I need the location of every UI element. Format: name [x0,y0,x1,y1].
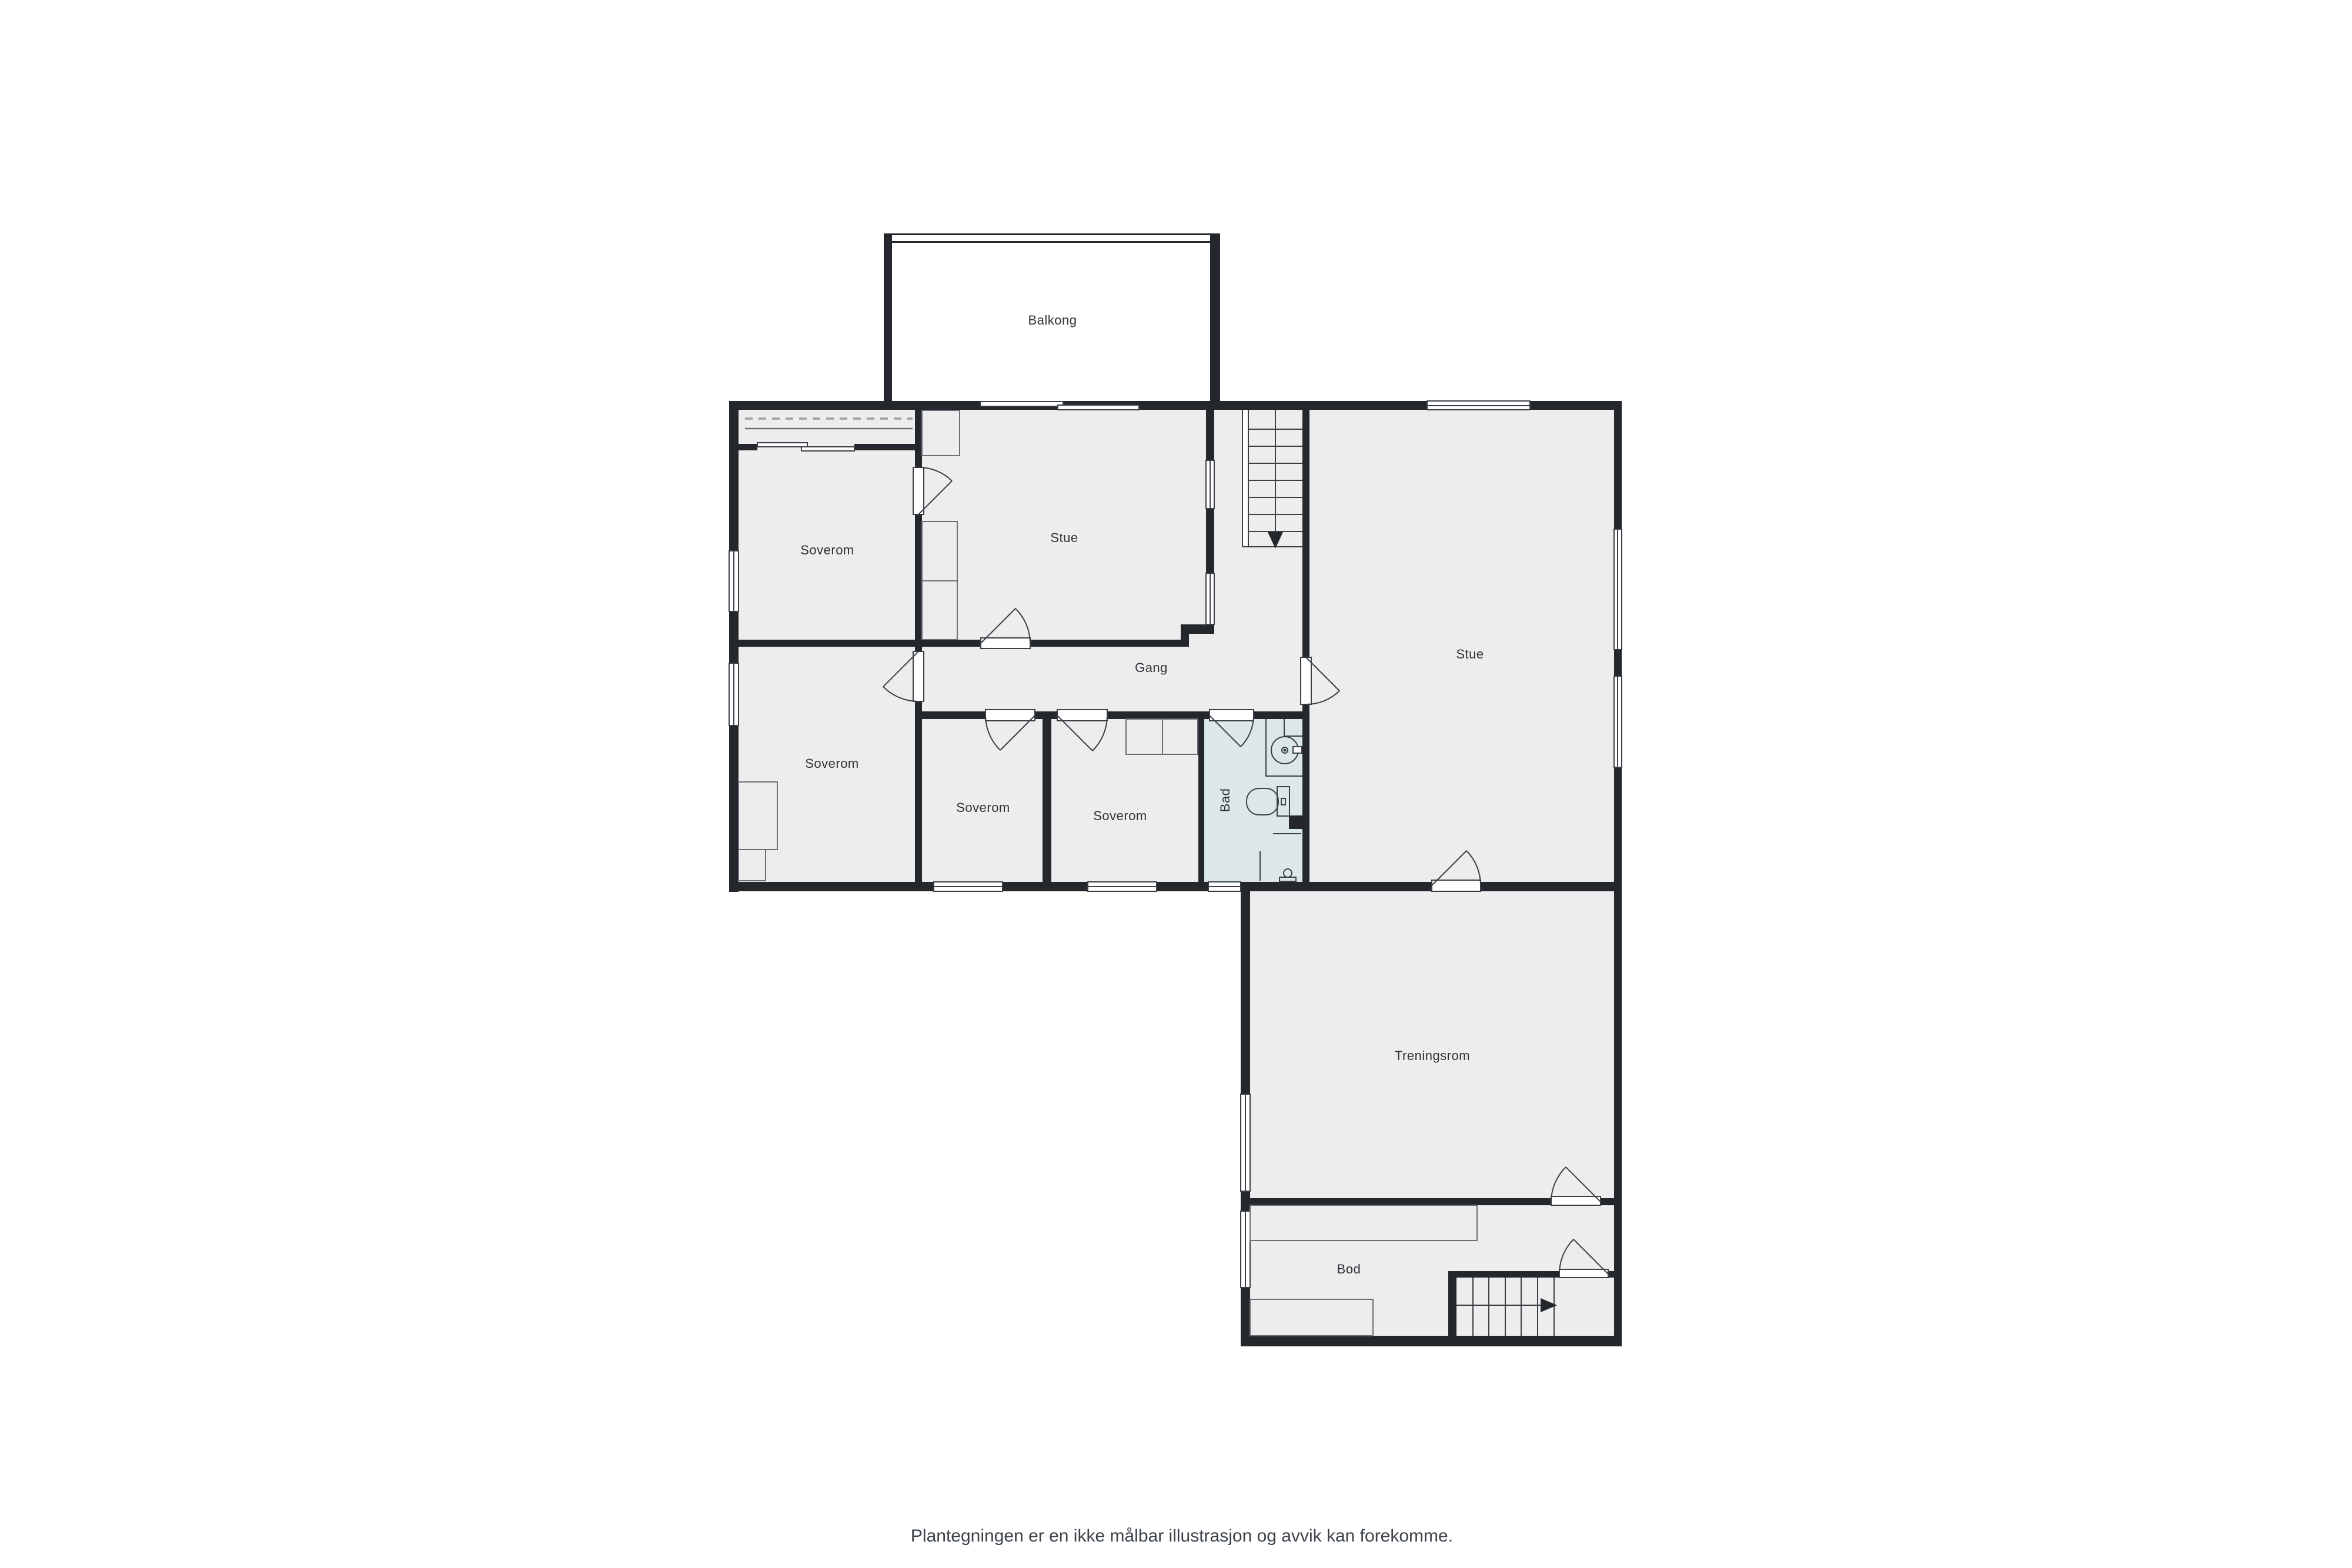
wall-glass-a [1206,410,1214,460]
window-stue-right-east-b [1614,676,1622,767]
wall-gang-top-b [1030,640,1189,647]
window-glass-partition-b [1206,573,1214,624]
wall-stairwell-jog-v [1181,634,1189,647]
balcony-wall-left [884,233,892,401]
wall-left [729,401,739,892]
floor-plan-drawing: Balkong Soverom Stue Gang Soverom Sovero… [0,0,2352,1568]
window-soverom-mid [934,882,1003,891]
wall-stuewall-a [1302,410,1309,657]
label-soverom-e: Soverom [1093,808,1147,823]
wall-bottom-upper-block [729,882,1622,891]
label-stue-right: Stue [1456,647,1484,661]
balcony-railing-outer [884,233,1220,235]
wall-sliding-right [854,444,915,450]
label-treningsrom: Treningsrom [1395,1048,1470,1063]
label-bod: Bod [1337,1262,1361,1276]
window-glass-partition-a [1206,460,1214,509]
window-soverom-e [1088,882,1157,891]
wall-bod-top-a [1250,1198,1551,1205]
wall-bod-top-b [1601,1198,1614,1205]
wall-stairs-left [1448,1271,1456,1345]
wall-bottom-lower-block [1241,1336,1622,1346]
window-stue-right-east-a [1614,529,1622,650]
label-gang: Gang [1135,660,1168,675]
wall-spine-b [915,514,922,651]
window-soverom-w [729,663,739,726]
window-bad [1208,882,1241,891]
wall-stairwell-jog-h [1181,624,1214,634]
wall-bad-left [1198,719,1204,882]
label-balkong: Balkong [1028,313,1077,327]
label-soverom-mid: Soverom [956,800,1010,815]
wall-gang-bottom-d [1254,711,1309,719]
wall-gang-bottom-b [1035,711,1057,719]
wall-bad-pilaster [1289,815,1302,829]
wall-glass-b [1206,509,1214,573]
wall-landing-stub [1608,1271,1614,1278]
window-bod [1241,1211,1250,1288]
wall-stuewall-b [1302,704,1309,889]
balcony-railing-inner [884,241,1220,243]
wall-spine-c [915,701,922,882]
wall-gang-bottom-a [920,711,985,719]
floor-plan-page: Balkong Soverom Stue Gang Soverom Sovero… [0,0,2352,1568]
wall-soverom-partition [1043,719,1051,882]
label-soverom-w: Soverom [805,756,859,771]
wall-sliding-left [739,444,757,450]
wall-stairs-top [1448,1271,1560,1278]
window-stue-right-top [1427,401,1530,410]
wall-gang-bottom-c [1107,711,1210,719]
disclaimer-text: Plantegningen er en ikke målbar illustra… [911,1526,1453,1546]
wall-spine-a [915,409,922,467]
window-treningsrom [1241,1094,1250,1191]
balcony-wall-right [1210,233,1220,401]
label-bad: Bad [1218,788,1232,813]
label-stue-upper: Stue [1050,530,1078,545]
label-soverom-nw: Soverom [800,543,854,557]
wall-gang-top-a [739,640,981,647]
window-soverom-nw [729,551,739,611]
